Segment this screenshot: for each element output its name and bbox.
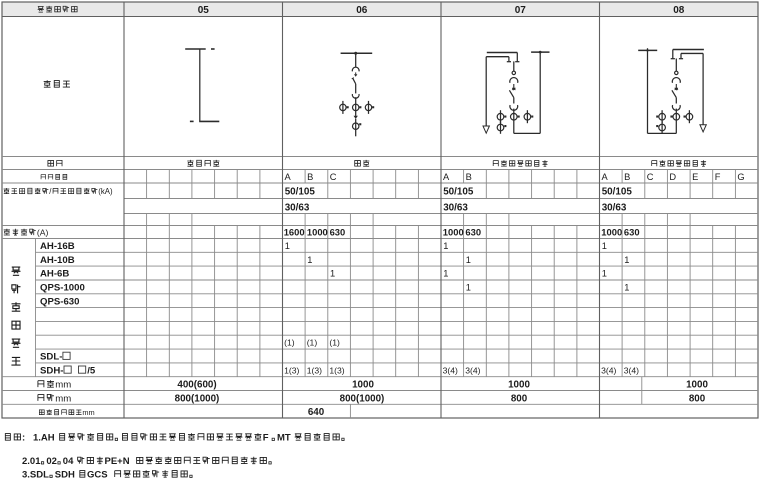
svg-text:1000: 1000 <box>443 227 464 238</box>
svg-text:E: E <box>692 172 698 182</box>
svg-text:AH-10B: AH-10B <box>40 255 75 266</box>
svg-text:640: 640 <box>308 407 325 418</box>
svg-text:SDH-: SDH- <box>40 365 63 376</box>
svg-text:800(1000): 800(1000) <box>175 393 220 404</box>
svg-text:mm: mm <box>55 380 71 391</box>
svg-text:B: B <box>466 172 472 182</box>
svg-text:50/105: 50/105 <box>443 187 474 198</box>
svg-text:06: 06 <box>356 5 368 16</box>
svg-text:(1): (1) <box>307 338 318 348</box>
svg-text:800: 800 <box>689 393 706 404</box>
svg-text:1.: 1. <box>33 433 41 444</box>
svg-text:D: D <box>669 172 676 182</box>
svg-text:C: C <box>330 172 337 182</box>
svg-text:50/105: 50/105 <box>285 187 316 198</box>
svg-text:A: A <box>285 172 292 182</box>
svg-text:2.01: 2.01 <box>22 456 41 467</box>
svg-text:30/63: 30/63 <box>602 202 627 213</box>
svg-text:630: 630 <box>330 227 346 238</box>
svg-text:50/105: 50/105 <box>602 187 633 198</box>
svg-text:1000: 1000 <box>352 380 374 391</box>
svg-text:1: 1 <box>602 269 607 279</box>
svg-text:1000: 1000 <box>508 380 530 391</box>
svg-text:1: 1 <box>466 255 471 265</box>
svg-text:1: 1 <box>624 255 629 265</box>
svg-text:SDH: SDH <box>55 470 75 481</box>
svg-text:PE+N: PE+N <box>105 456 130 467</box>
svg-text:08: 08 <box>673 5 685 16</box>
svg-text:630: 630 <box>465 227 481 238</box>
svg-text:mm: mm <box>82 408 94 417</box>
svg-text:800(1000): 800(1000) <box>340 393 385 404</box>
svg-text:(A): (A) <box>37 227 49 237</box>
svg-text:GCS: GCS <box>87 470 108 481</box>
svg-text:3(4): 3(4) <box>624 365 639 375</box>
svg-text:1000: 1000 <box>601 227 622 238</box>
svg-text:QPS-1000: QPS-1000 <box>40 283 85 294</box>
svg-text:QPS-630: QPS-630 <box>40 296 79 307</box>
svg-text:30/63: 30/63 <box>443 202 468 213</box>
svg-text::: : <box>22 433 25 444</box>
svg-text:G: G <box>737 172 744 182</box>
svg-text:1: 1 <box>602 241 607 251</box>
svg-text:1000: 1000 <box>307 227 328 238</box>
svg-text:SDL-: SDL- <box>40 352 62 363</box>
svg-text:F: F <box>263 433 269 444</box>
svg-text:1: 1 <box>466 283 471 293</box>
svg-text:1: 1 <box>307 255 312 265</box>
svg-text:(kA): (kA) <box>98 187 113 196</box>
svg-text:/5: /5 <box>87 365 96 376</box>
svg-text:1(3): 1(3) <box>329 365 344 375</box>
svg-text:1: 1 <box>443 241 448 251</box>
svg-text:1: 1 <box>330 269 335 279</box>
svg-text:A: A <box>602 172 609 182</box>
svg-text:1(3): 1(3) <box>284 365 299 375</box>
svg-text:3.SDL: 3.SDL <box>22 470 49 481</box>
svg-text:07: 07 <box>515 5 527 16</box>
svg-text:02: 02 <box>46 456 57 467</box>
svg-text:630: 630 <box>624 227 640 238</box>
svg-text:1600: 1600 <box>284 227 305 238</box>
svg-text:(1): (1) <box>284 338 295 348</box>
svg-text:400(600): 400(600) <box>177 380 216 391</box>
svg-text:3(4): 3(4) <box>601 365 616 375</box>
svg-text:1: 1 <box>285 241 290 251</box>
svg-text:04: 04 <box>63 456 74 467</box>
svg-text:B: B <box>624 172 630 182</box>
svg-text:mm: mm <box>55 393 71 404</box>
svg-text:1: 1 <box>443 269 448 279</box>
svg-text:AH: AH <box>41 433 55 444</box>
svg-text:3(4): 3(4) <box>443 365 458 375</box>
svg-text:C: C <box>647 172 654 182</box>
svg-text:B: B <box>307 172 313 182</box>
svg-text:1000: 1000 <box>686 380 708 391</box>
svg-text:(1): (1) <box>329 338 340 348</box>
svg-text:AH-6B: AH-6B <box>40 269 69 280</box>
svg-text:3(4): 3(4) <box>465 365 480 375</box>
svg-text:1: 1 <box>624 283 629 293</box>
svg-text:MT: MT <box>277 433 291 444</box>
svg-text:F: F <box>715 172 721 182</box>
svg-text:1(3): 1(3) <box>307 365 322 375</box>
svg-text:AH-16B: AH-16B <box>40 241 75 252</box>
svg-text:30/63: 30/63 <box>285 202 310 213</box>
svg-text:A: A <box>443 172 450 182</box>
svg-text:800: 800 <box>511 393 528 404</box>
svg-text:05: 05 <box>198 5 210 16</box>
